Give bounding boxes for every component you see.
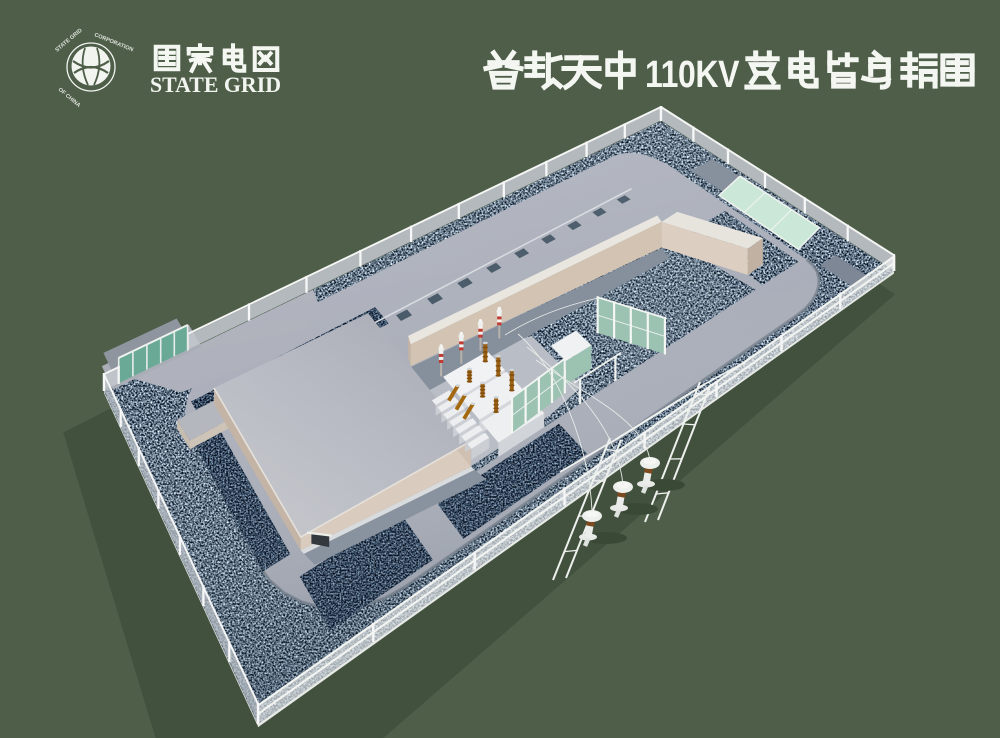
svg-text:110KV: 110KV [645,54,740,96]
svg-text:STATE GRID: STATE GRID [150,72,281,97]
